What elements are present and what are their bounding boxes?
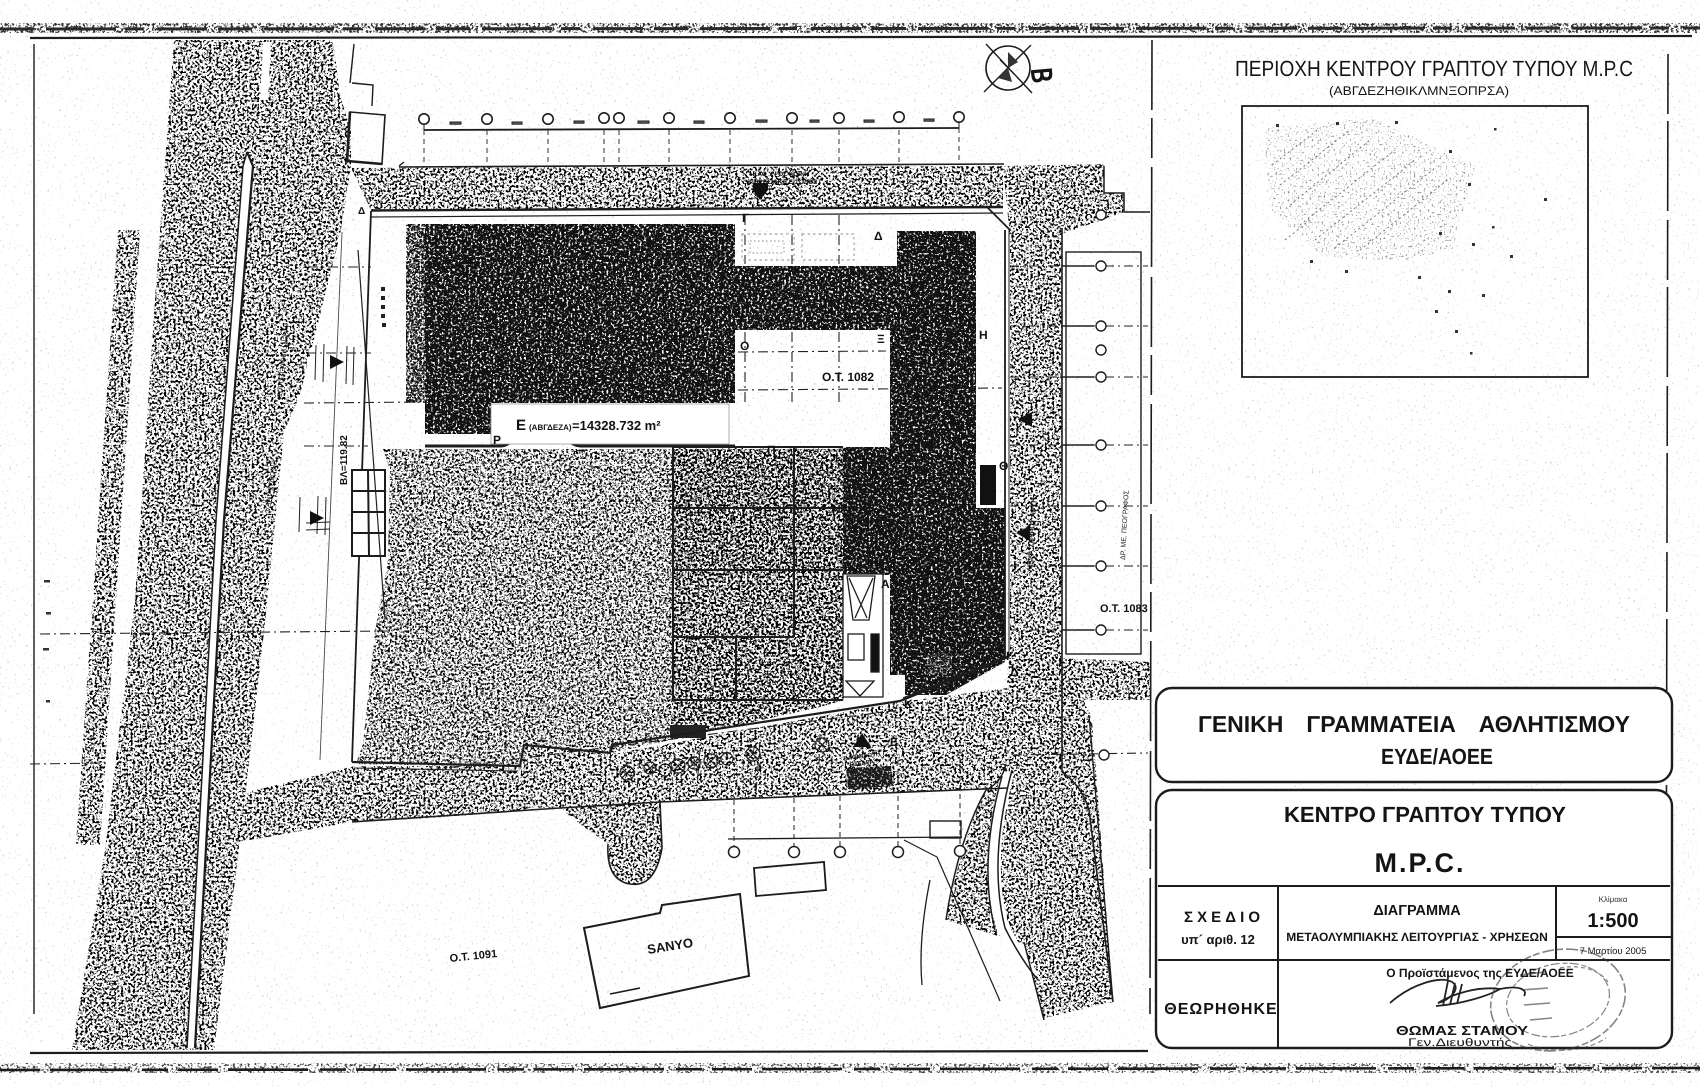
svg-text:Ε: Ε: [516, 417, 526, 434]
svg-text:ΓΕΝΙΚΗ ΓΡΑΜΜΑΤΕΙΑ ΑΘΛΗΤΙΣΜΟΥ: ΓΕΝΙΚΗ ΓΡΑΜΜΑΤΕΙΑ ΑΘΛΗΤΙΣΜΟΥ: [1198, 711, 1630, 737]
svg-text:Α: Α: [881, 577, 890, 591]
svg-text:Ξ: Ξ: [877, 332, 885, 346]
svg-text:(ΑΒΓΔΕΖΗΘΙΚΛΜΝΞΟΠΡΣΑ): (ΑΒΓΔΕΖΗΘΙΚΛΜΝΞΟΠΡΣΑ): [1329, 84, 1509, 98]
svg-text:Ρ: Ρ: [493, 433, 501, 447]
svg-text:ΔΙΑΓΡΑΜΜΑ: ΔΙΑΓΡΑΜΜΑ: [1373, 903, 1461, 919]
svg-text:1:500: 1:500: [1587, 910, 1638, 932]
svg-text:ΕΥΔΕ/ΑΟΕΕ: ΕΥΔΕ/ΑΟΕΕ: [1381, 744, 1493, 769]
svg-text:Δ: Δ: [1010, 665, 1019, 679]
svg-text:ΘΩΜΑΣ ΣΤΑΜΟΥ: ΘΩΜΑΣ ΣΤΑΜΟΥ: [1396, 1023, 1528, 1038]
svg-text:Ν: Ν: [832, 502, 841, 516]
svg-text:ΜΕΤΑΟΛΥΜΠΙΑΚΗΣ ΛΕΙΤΟΥΡΓΙΑΣ - Χ: ΜΕΤΑΟΛΥΜΠΙΑΚΗΣ ΛΕΙΤΟΥΡΓΙΑΣ - ΧΡΗΣΕΩΝ: [1286, 930, 1548, 944]
svg-text:Ο: Ο: [740, 339, 749, 353]
svg-text:O.T. 1083: O.T. 1083: [1100, 603, 1148, 615]
svg-text:Θ: Θ: [999, 459, 1008, 473]
svg-text:Κ: Κ: [904, 697, 913, 711]
svg-text:ΒΛ=119.82: ΒΛ=119.82: [339, 435, 350, 485]
svg-text:Κλίμακα: Κλίμακα: [1599, 895, 1628, 904]
svg-text:O.T. 1082: O.T. 1082: [822, 370, 874, 384]
svg-text:7 Μαρτίου 2005: 7 Μαρτίου 2005: [1580, 946, 1647, 957]
svg-text:Ε: Ε: [890, 735, 898, 749]
svg-text:=14328.732 m²: =14328.732 m²: [572, 418, 661, 433]
svg-text:Π: Π: [767, 443, 776, 457]
svg-text:ΘΕΩΡΗΘΗΚΕ: ΘΕΩΡΗΘΗΚΕ: [1164, 1001, 1277, 1018]
svg-text:Δ: Δ: [358, 206, 365, 217]
svg-text:(ΑΒΓΔΕΖΑ): (ΑΒΓΔΕΖΑ): [529, 423, 572, 432]
svg-text:ΚΑΘ ΥΨΟΣ ΚΟΙΝΗ: ΚΑΘ ΥΨΟΣ ΚΟΙΝΗ: [753, 171, 810, 178]
svg-text:Γεν.Διευθυντής: Γεν.Διευθυντής: [1408, 1037, 1512, 1049]
svg-text:Γ: Γ: [742, 211, 750, 225]
svg-text:Δ: Δ: [874, 229, 883, 243]
svg-text:Ο Προϊστάμενος της ΕΥΔΕ/ΑΟΕΕ: Ο Προϊστάμενος της ΕΥΔΕ/ΑΟΕΕ: [1386, 966, 1573, 980]
svg-text:ΚΕΝΤΡΟ ΓΡΑΠΤΟΥ ΤΥΠΟΥ: ΚΕΝΤΡΟ ΓΡΑΠΤΟΥ ΤΥΠΟΥ: [1284, 802, 1566, 827]
svg-text:M.P.C.: M.P.C.: [1374, 848, 1465, 878]
svg-text:Ι: Ι: [1006, 649, 1009, 663]
svg-text:Η: Η: [979, 328, 988, 342]
svg-text:υπ´ αριθ. 12: υπ´ αριθ. 12: [1181, 932, 1255, 947]
svg-text:ΠΕΡΙΟΧΗ ΚΕΝΤΡΟΥ ΓΡΑΠΤΟΥ ΤΥΠΟΥ: ΠΕΡΙΟΧΗ ΚΕΝΤΡΟΥ ΓΡΑΠΤΟΥ ΤΥΠΟΥ Μ.Ρ.C: [1235, 56, 1633, 81]
svg-text:ΥΠΗΡΕΣΙΑΚΗ ΕΙΣΟΔΟΣ: ΥΠΗΡΕΣΙΑΚΗ ΕΙΣΟΔΟΣ: [745, 179, 817, 186]
